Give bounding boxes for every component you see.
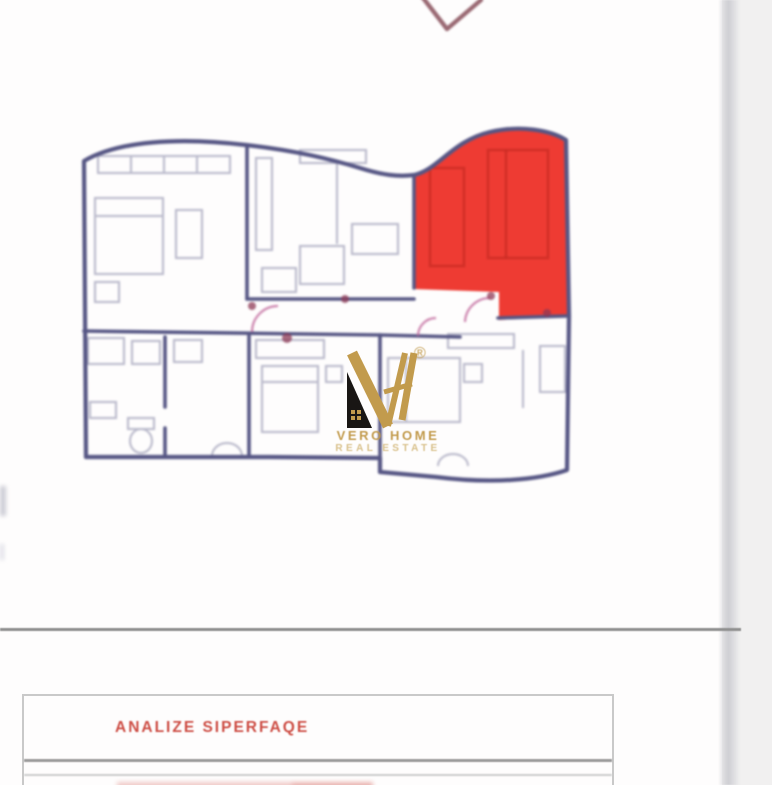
logo-name: VERO HOME <box>325 428 451 443</box>
table-inner-border <box>24 774 612 776</box>
vh-monogram-icon <box>0 0 772 600</box>
page-edge-shadow <box>718 0 740 785</box>
logo-tagline: REAL ESTATE <box>325 443 451 454</box>
table-header-row: ANALIZE SIPERFAQE <box>24 696 612 759</box>
table-header-label: ANALIZE SIPERFAQE <box>115 719 309 737</box>
analysis-table: ANALIZE SIPERFAQE <box>22 694 614 785</box>
scanned-document-page: ® VERO HOME REAL ESTATE ANALIZE SIPERFAQ… <box>0 0 772 785</box>
scan-smudge <box>0 486 6 516</box>
table-second-row <box>24 762 612 785</box>
registered-mark: ® <box>414 345 426 363</box>
scan-smudge <box>0 544 4 560</box>
horizontal-rule <box>0 628 741 631</box>
